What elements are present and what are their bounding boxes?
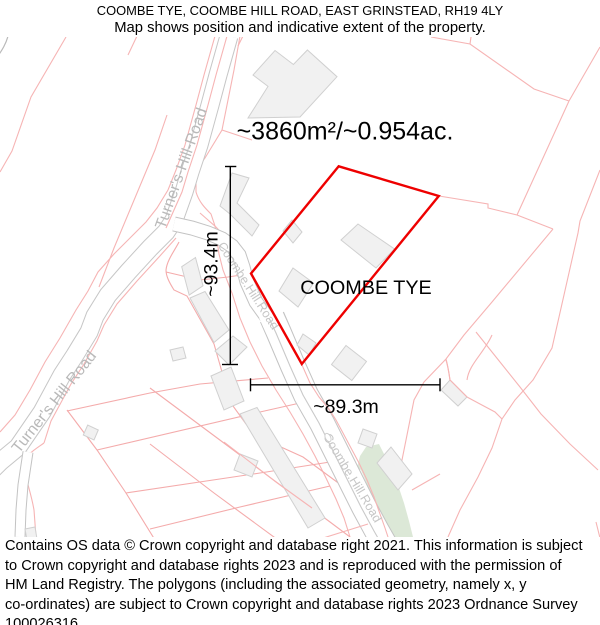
svg-text:COOMBE TYE: COOMBE TYE	[300, 277, 432, 299]
svg-text:~93.4m: ~93.4m	[201, 231, 223, 297]
svg-text:Coombe.Hill.Road: Coombe.Hill.Road	[215, 239, 282, 332]
svg-text:~89.3m: ~89.3m	[313, 396, 379, 418]
svg-text:~3860m²/~0.954ac.: ~3860m²/~0.954ac.	[237, 118, 454, 146]
